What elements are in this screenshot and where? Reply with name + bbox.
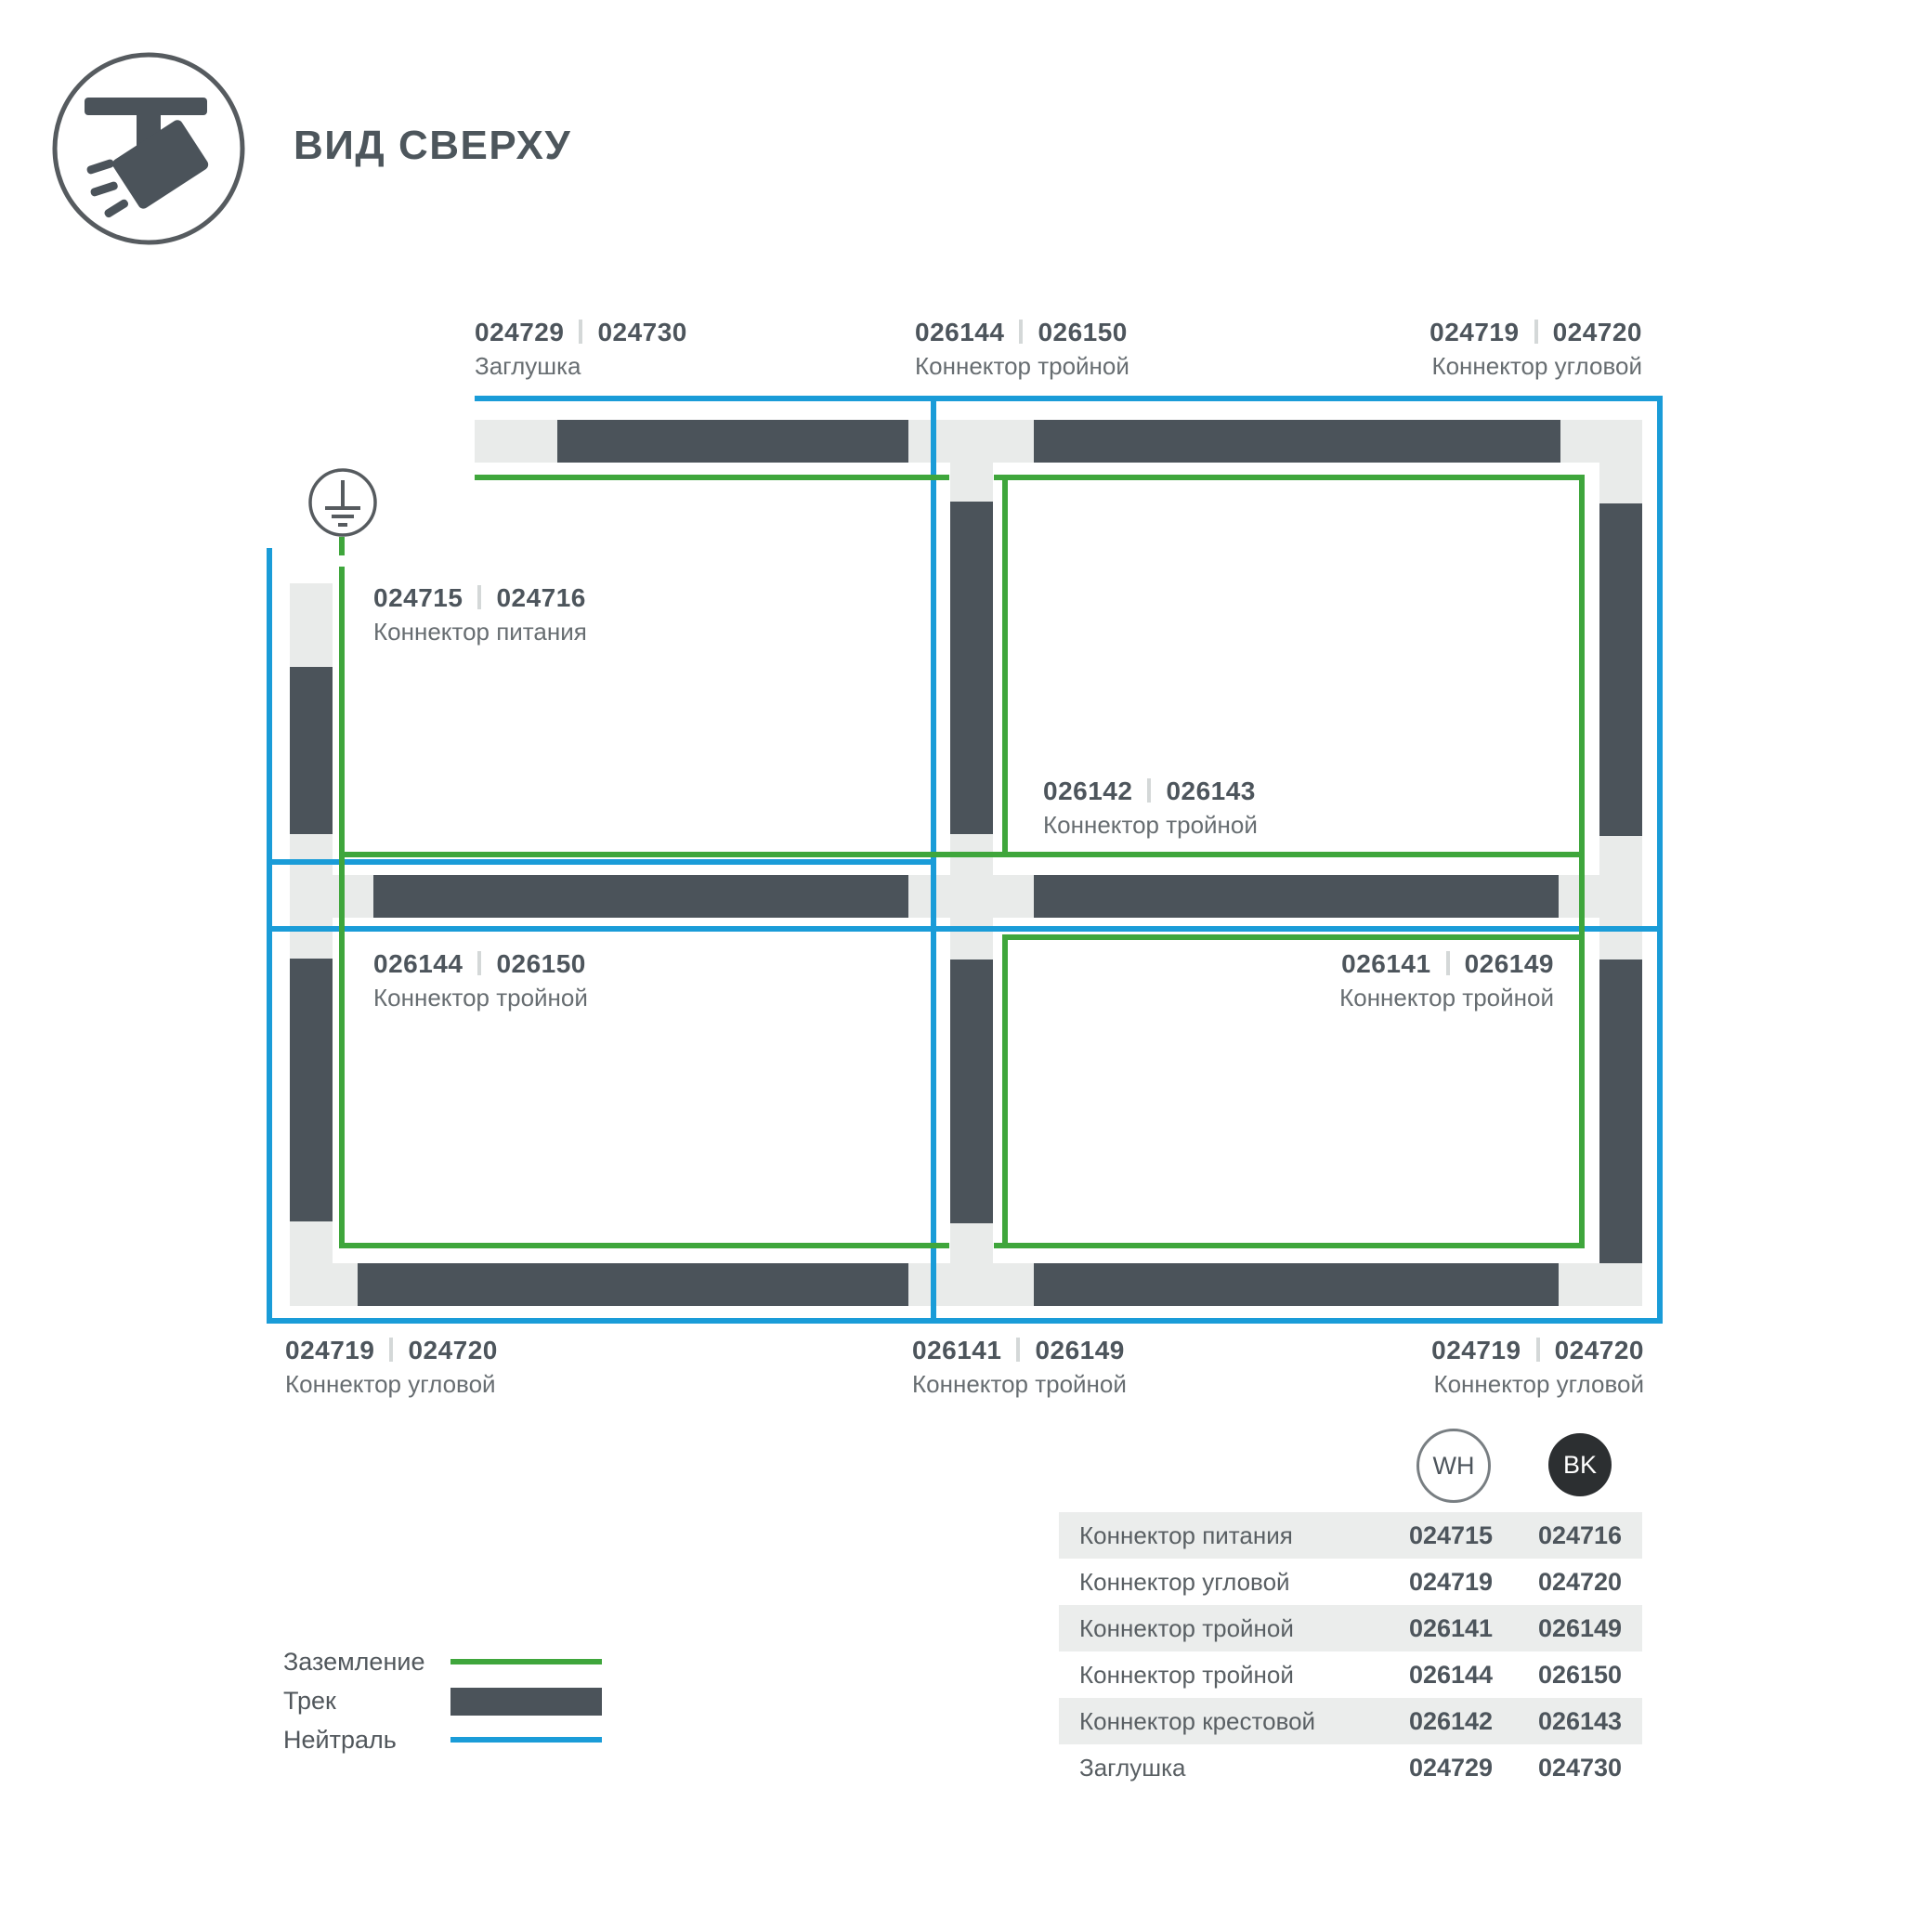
ground-line-right-v: [1579, 475, 1585, 1248]
color-badge-black: BK: [1548, 1433, 1612, 1496]
track-segment: [290, 959, 333, 1221]
divider: [389, 1338, 393, 1362]
ground-line-left-v: [339, 583, 345, 1248]
parts-table: Коннектор питания 024715 024716 Коннекто…: [1059, 1512, 1642, 1791]
ground-line-swatch: [450, 1648, 602, 1664]
ground-line-br-bottom: [994, 1243, 1585, 1248]
track-segment: [1034, 875, 1559, 918]
neutral-line-swatch: [450, 1726, 602, 1743]
label-power-feed: 024715024716 Коннектор питания: [373, 585, 587, 644]
label-tee-top: 026144026150 Коннектор тройной: [915, 320, 1129, 378]
label-tee-right: 026141026149 Коннектор тройной: [1339, 951, 1554, 1010]
legend-item-neutral: Нейтраль: [283, 1726, 618, 1765]
track-segment: [1599, 959, 1642, 1263]
divider: [579, 320, 582, 344]
divider: [1536, 1338, 1540, 1362]
divider: [1016, 1338, 1020, 1362]
track-segment: [373, 875, 908, 918]
label-corner-bottom-left: 024719024720 Коннектор угловой: [285, 1338, 498, 1396]
label-tee-bottom: 026141026149 Коннектор тройной: [912, 1338, 1127, 1396]
divider: [1534, 320, 1538, 344]
table-row: Коннектор тройной 026144 026150: [1059, 1651, 1642, 1698]
ground-line-br-left-v: [1002, 934, 1008, 1248]
track-segment: [290, 667, 333, 834]
track-segment: [1599, 503, 1642, 836]
neutral-line-bottom: [267, 1318, 1663, 1324]
legend-item-ground: Заземление: [283, 1648, 618, 1687]
divider: [1019, 320, 1023, 344]
ground-line-tr-top: [994, 475, 1585, 480]
ground-line-mid-h: [339, 852, 1585, 857]
ground-line-tl-top: [475, 475, 949, 480]
label-corner-bottom-right: 024719024720 Коннектор угловой: [1431, 1338, 1644, 1396]
label-tee-left: 026144026150 Коннектор тройной: [373, 951, 588, 1010]
label-quad-top-right: 026142026143 Коннектор тройной: [1043, 778, 1258, 837]
neutral-line-left: [267, 548, 272, 1324]
track-segment: [557, 420, 908, 463]
neutral-line-center-v: [931, 396, 936, 1321]
neutral-line-right: [1657, 396, 1663, 1324]
track-light-icon: [51, 51, 246, 251]
divider: [477, 585, 481, 609]
neutral-line-mid-a: [267, 859, 936, 865]
table-row: Коннектор тройной 026141 026149: [1059, 1605, 1642, 1651]
track-segment: [1034, 420, 1560, 463]
ground-line-tr-left-v: [1002, 475, 1008, 857]
color-badge-white: WH: [1416, 1429, 1491, 1503]
track-segment: [1034, 1263, 1559, 1306]
table-row: Коннектор крестовой 026142 026143: [1059, 1698, 1642, 1744]
divider: [1446, 951, 1450, 975]
track-segment: [950, 959, 993, 1223]
track-segment: [358, 1263, 908, 1306]
ground-line-bl-bottom: [339, 1243, 949, 1248]
legend-item-track: Трек: [283, 1687, 618, 1726]
neutral-line-top: [475, 396, 1663, 401]
page-title: ВИД СВЕРХУ: [294, 123, 571, 169]
table-row: Коннектор угловой 024719 024720: [1059, 1559, 1642, 1605]
page: ВИД СВЕРХУ: [0, 0, 1932, 1932]
table-row: Коннектор питания 024715 024716: [1059, 1512, 1642, 1559]
earth-ground-icon: [307, 467, 378, 542]
table-row: Заглушка 024729 024730: [1059, 1744, 1642, 1791]
track-segment: [950, 502, 993, 834]
label-corner-top-right: 024719024720 Коннектор угловой: [1429, 320, 1642, 378]
divider: [477, 951, 481, 975]
label-endcap-top: 024729024730 Заглушка: [475, 320, 687, 378]
neutral-line-mid-b: [267, 926, 1663, 932]
divider: [1147, 778, 1151, 803]
ground-line-br-top: [1002, 934, 1585, 940]
track-bar-swatch: [450, 1687, 602, 1716]
ground-lead-dashed: [339, 537, 345, 583]
legend: Заземление Трек Нейтраль: [283, 1648, 618, 1765]
